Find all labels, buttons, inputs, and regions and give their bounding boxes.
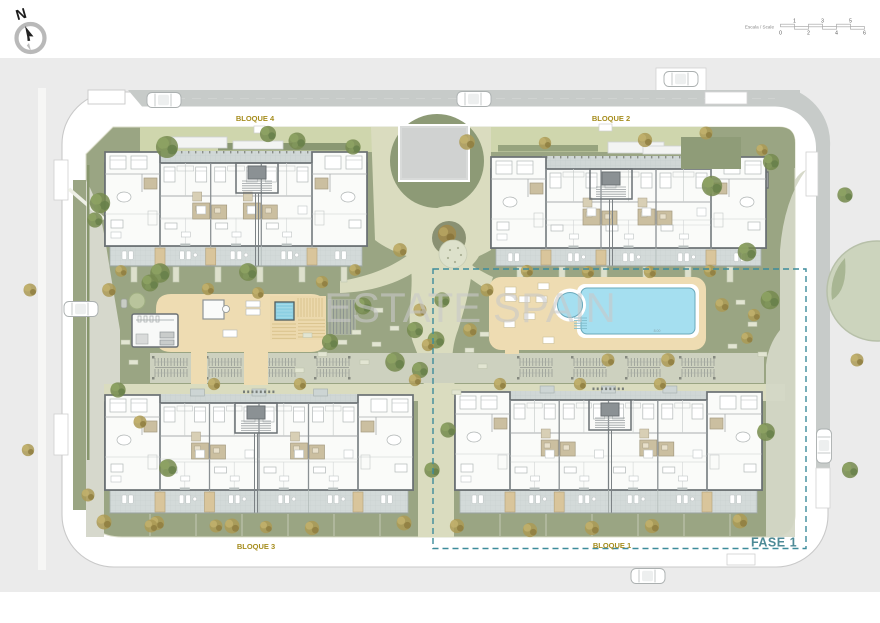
svg-text:3: 3 (821, 19, 824, 25)
svg-text:8.00: 8.00 (654, 329, 661, 333)
svg-text:BLOQUE 2: BLOQUE 2 (592, 114, 630, 123)
svg-text:4: 4 (835, 31, 838, 37)
svg-text:2: 2 (807, 31, 810, 37)
svg-text:1: 1 (793, 19, 796, 25)
svg-text:FASE 1: FASE 1 (751, 536, 797, 550)
svg-text:BLOQUE 4: BLOQUE 4 (236, 114, 275, 123)
svg-text:0: 0 (779, 31, 782, 37)
svg-text:ESTATE SPAIN: ESTATE SPAIN (324, 284, 616, 331)
svg-text:Escala / Scale: Escala / Scale (745, 25, 775, 30)
svg-text:BLOQUE 3: BLOQUE 3 (237, 542, 275, 551)
svg-text:6: 6 (863, 31, 866, 37)
svg-text:BLOQUE 1: BLOQUE 1 (593, 541, 631, 550)
svg-text:5: 5 (849, 19, 852, 25)
